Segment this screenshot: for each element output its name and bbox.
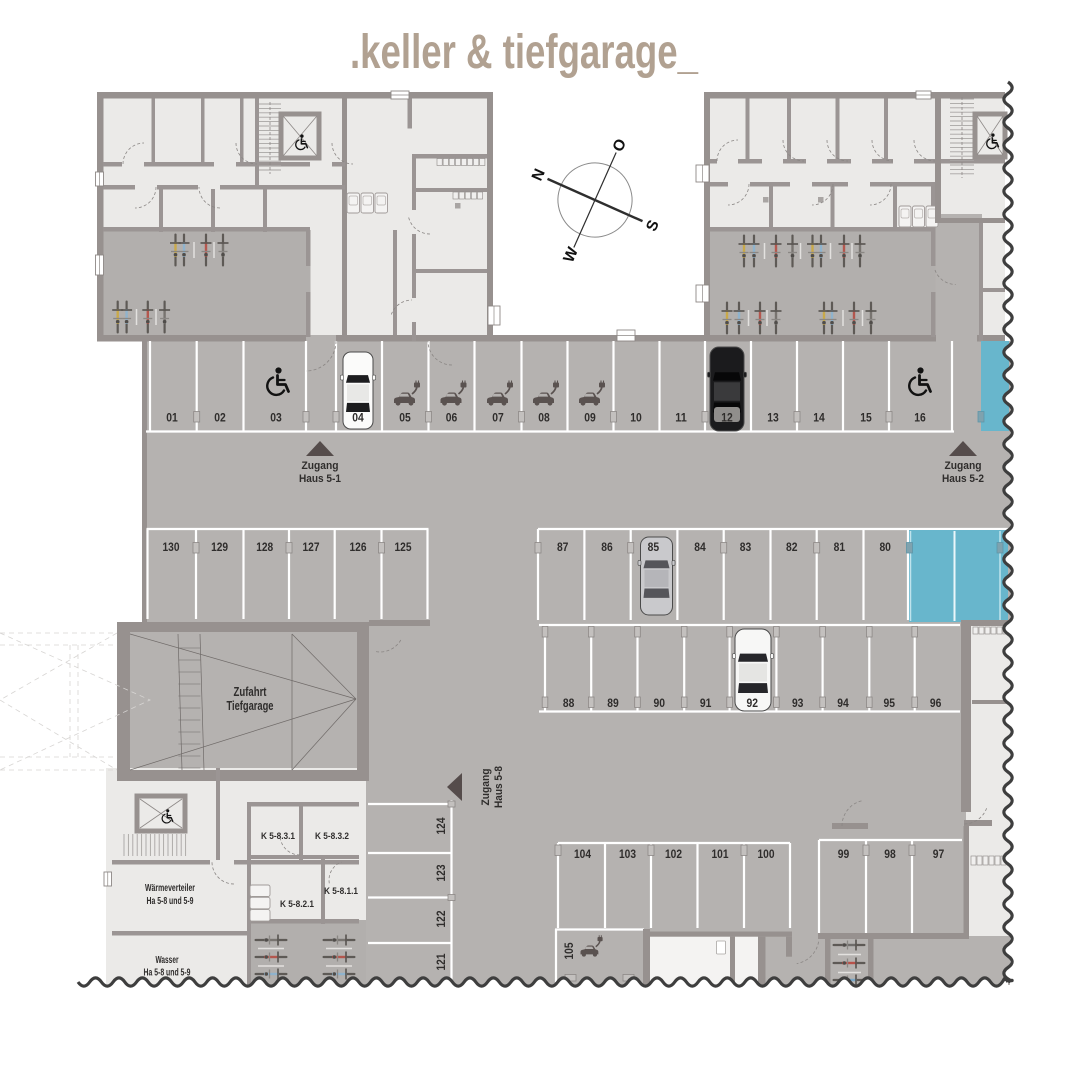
svg-text:16: 16 xyxy=(914,413,926,425)
svg-text:Wasser: Wasser xyxy=(156,955,179,966)
svg-text:80: 80 xyxy=(879,542,891,554)
svg-text:.keller & tiefgarage_: .keller & tiefgarage_ xyxy=(350,26,699,79)
svg-text:130: 130 xyxy=(163,542,180,554)
svg-text:97: 97 xyxy=(933,849,945,861)
svg-text:122: 122 xyxy=(436,911,448,928)
svg-text:Zufahrt: Zufahrt xyxy=(234,685,268,699)
svg-text:05: 05 xyxy=(399,413,411,425)
svg-text:12: 12 xyxy=(721,413,733,425)
svg-text:K 5-8.3.2: K 5-8.3.2 xyxy=(315,831,349,841)
svg-text:96: 96 xyxy=(930,698,942,710)
svg-text:04: 04 xyxy=(352,413,364,425)
svg-text:03: 03 xyxy=(270,413,282,425)
svg-text:88: 88 xyxy=(563,698,575,710)
svg-text:94: 94 xyxy=(837,698,849,710)
svg-text:127: 127 xyxy=(303,542,320,554)
svg-text:Zugang: Zugang xyxy=(945,460,982,472)
svg-text:93: 93 xyxy=(792,698,804,710)
svg-text:129: 129 xyxy=(211,542,228,554)
svg-text:Haus 5-8: Haus 5-8 xyxy=(493,766,505,808)
svg-text:95: 95 xyxy=(884,698,896,710)
svg-text:08: 08 xyxy=(538,413,550,425)
svg-text:Zugang: Zugang xyxy=(480,769,492,806)
svg-text:85: 85 xyxy=(648,542,660,554)
svg-text:100: 100 xyxy=(758,849,775,861)
svg-text:128: 128 xyxy=(256,542,274,554)
svg-text:81: 81 xyxy=(834,542,846,554)
svg-text:125: 125 xyxy=(395,542,413,554)
svg-text:92: 92 xyxy=(747,698,759,710)
svg-text:K 5-8.3.1: K 5-8.3.1 xyxy=(261,831,295,841)
svg-text:103: 103 xyxy=(619,849,636,861)
svg-text:126: 126 xyxy=(350,542,367,554)
svg-text:83: 83 xyxy=(740,542,752,554)
svg-text:Wärmeverteiler: Wärmeverteiler xyxy=(145,883,195,894)
svg-text:91: 91 xyxy=(700,698,712,710)
svg-text:98: 98 xyxy=(884,849,896,861)
svg-text:K 5-8.1.1: K 5-8.1.1 xyxy=(324,886,358,896)
svg-text:123: 123 xyxy=(436,865,448,882)
svg-text:14: 14 xyxy=(813,413,825,425)
svg-text:02: 02 xyxy=(214,413,226,425)
svg-text:101: 101 xyxy=(712,849,730,861)
svg-text:102: 102 xyxy=(665,849,682,861)
svg-text:Ha 5-8 und 5-9: Ha 5-8 und 5-9 xyxy=(147,896,194,907)
svg-text:Haus 5-2: Haus 5-2 xyxy=(942,473,984,485)
svg-text:99: 99 xyxy=(838,849,850,861)
svg-text:K 5-8.2.1: K 5-8.2.1 xyxy=(280,899,314,909)
svg-text:87: 87 xyxy=(557,542,569,554)
svg-text:06: 06 xyxy=(446,413,458,425)
svg-text:89: 89 xyxy=(607,698,619,710)
svg-text:124: 124 xyxy=(436,817,448,835)
svg-text:09: 09 xyxy=(584,413,596,425)
svg-text:86: 86 xyxy=(601,542,613,554)
svg-text:84: 84 xyxy=(694,542,706,554)
svg-text:82: 82 xyxy=(786,542,798,554)
svg-text:104: 104 xyxy=(574,849,592,861)
svg-text:121: 121 xyxy=(436,953,448,971)
svg-text:11: 11 xyxy=(675,413,687,425)
svg-text:10: 10 xyxy=(630,413,642,425)
svg-text:13: 13 xyxy=(767,413,779,425)
svg-text:01: 01 xyxy=(166,413,178,425)
svg-text:15: 15 xyxy=(860,413,872,425)
svg-text:Haus 5-1: Haus 5-1 xyxy=(299,473,341,485)
svg-text:Zugang: Zugang xyxy=(302,460,339,472)
svg-text:105: 105 xyxy=(564,942,576,960)
svg-text:07: 07 xyxy=(492,413,504,425)
svg-text:90: 90 xyxy=(654,698,666,710)
svg-text:Tiefgarage: Tiefgarage xyxy=(227,699,274,713)
